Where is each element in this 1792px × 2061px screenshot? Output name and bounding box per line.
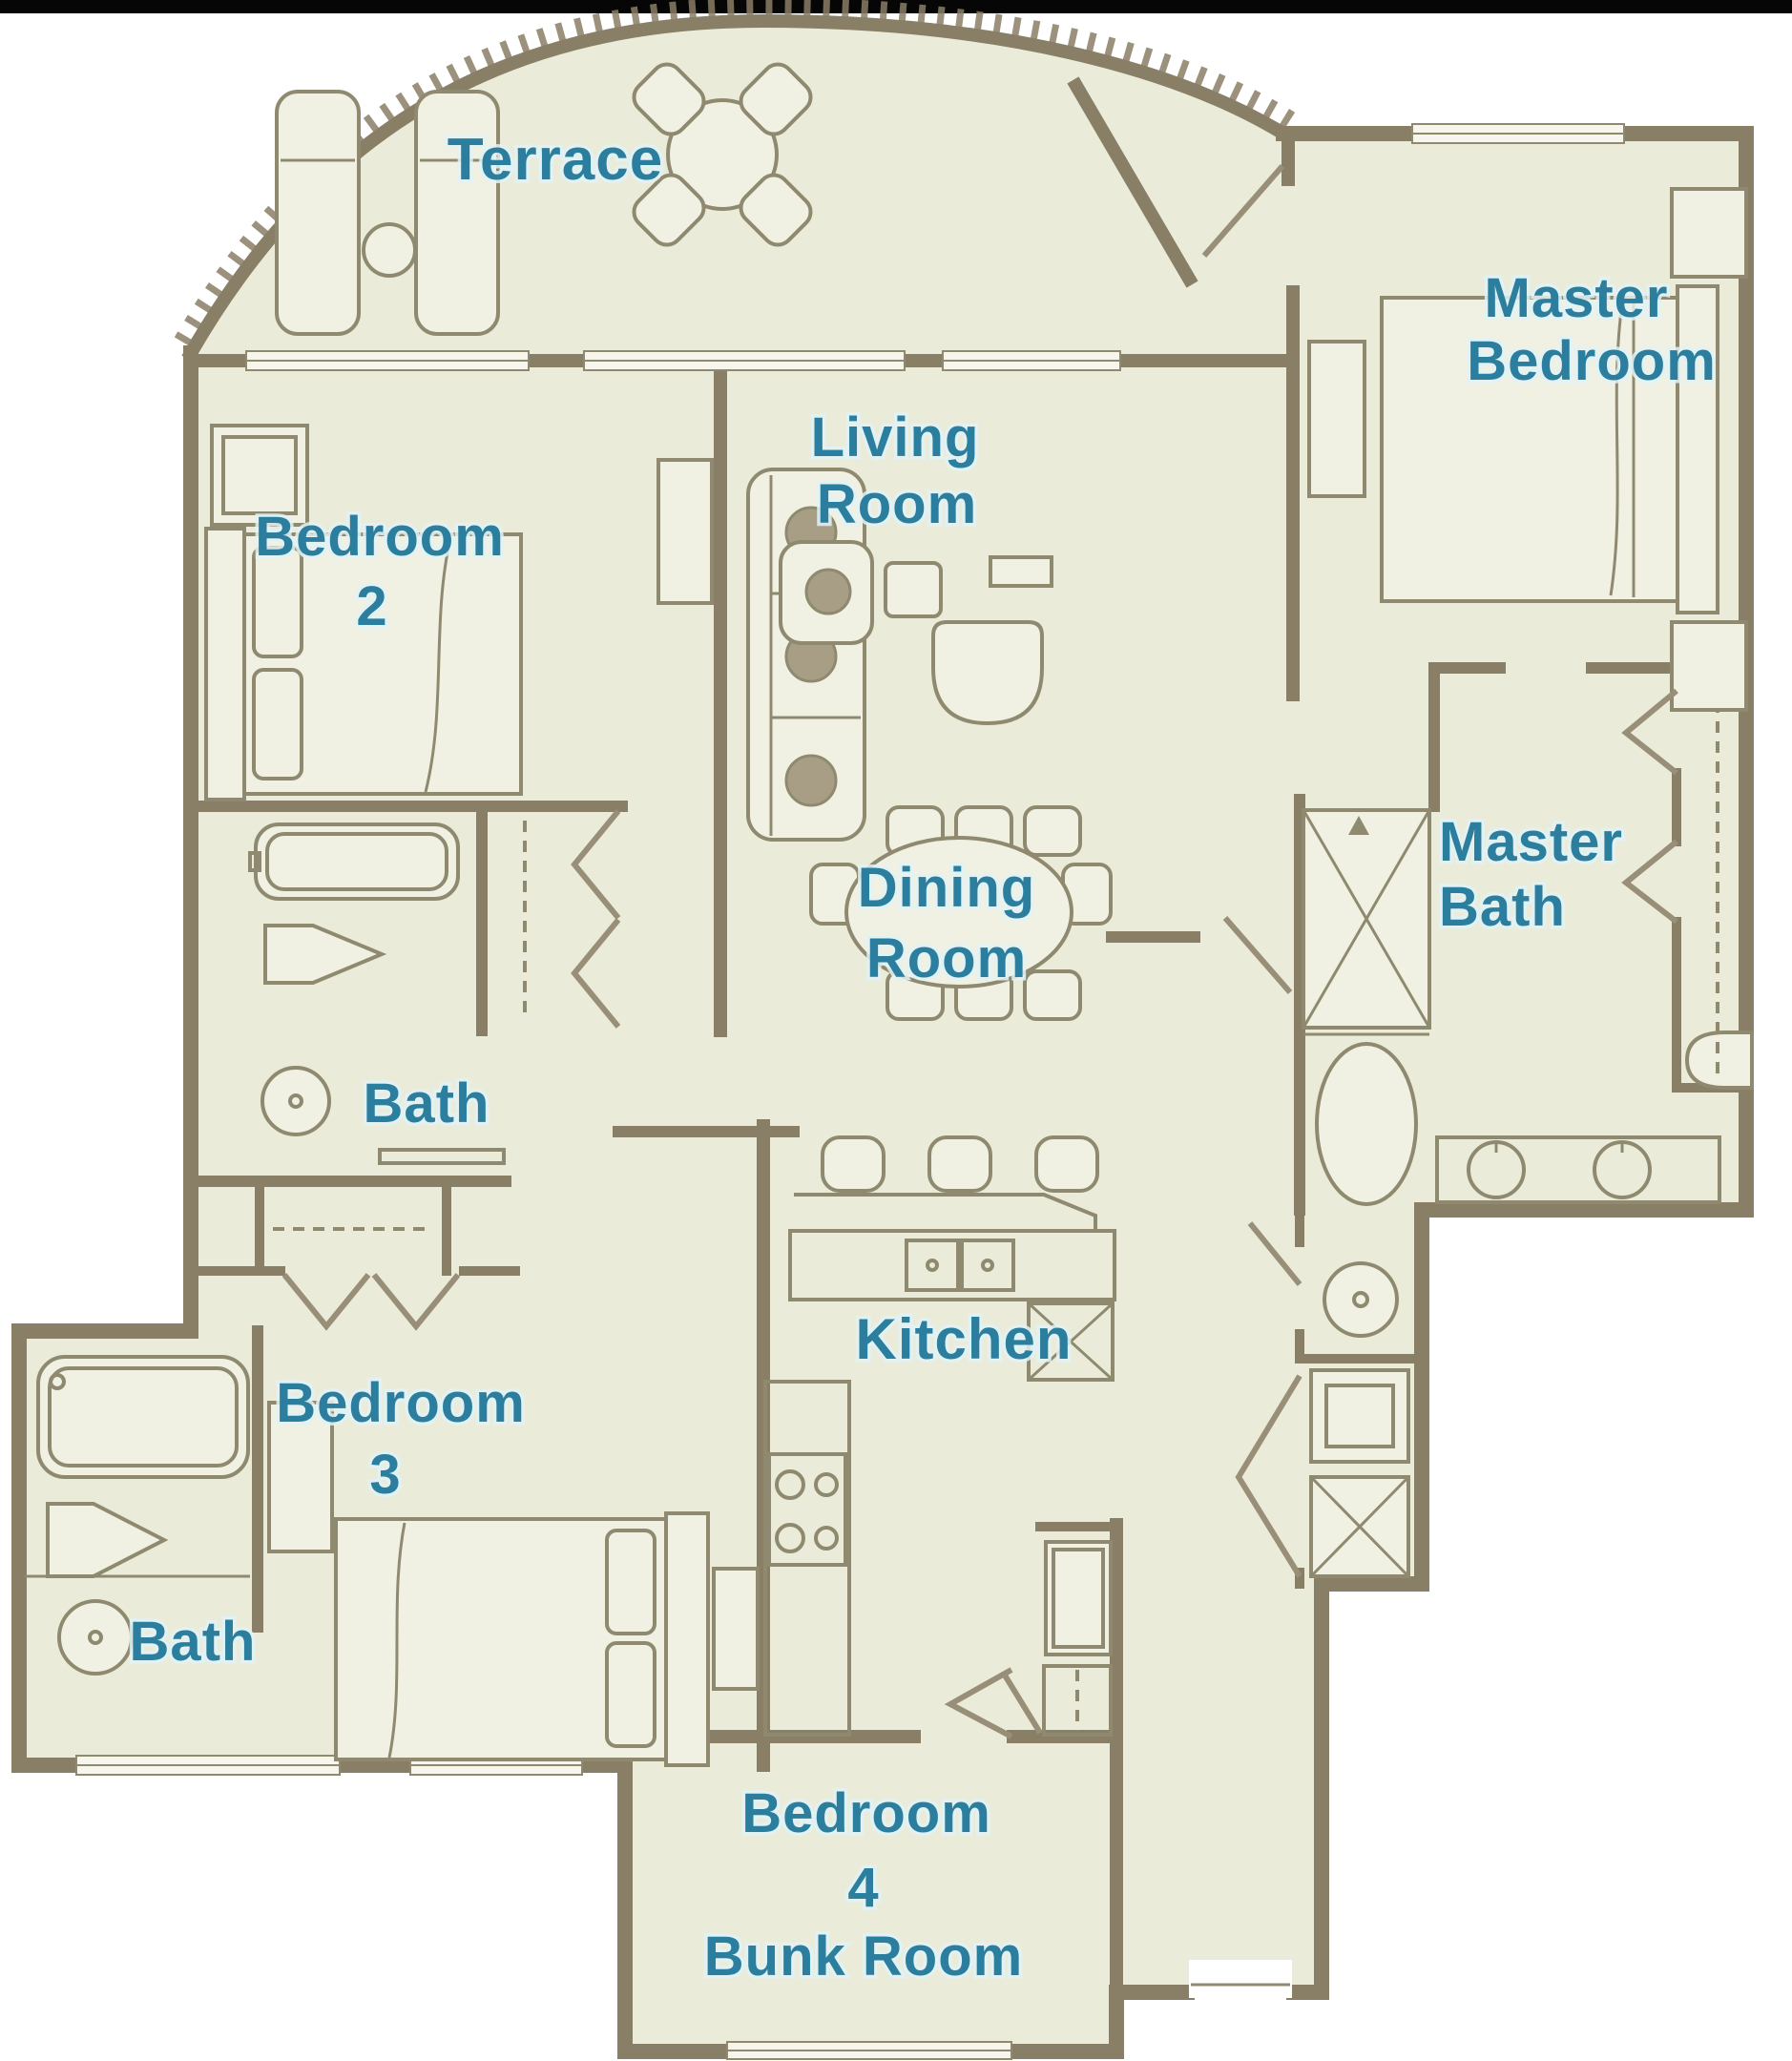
dining-chair-icon <box>1025 971 1080 1019</box>
toilet-icon <box>59 1601 132 1674</box>
pillow-icon <box>607 1530 655 1634</box>
label-living-room: Room <box>817 473 977 535</box>
label-dining-room: Dining <box>858 857 1035 919</box>
accent-chair-icon <box>933 622 1042 723</box>
label-bedroom-3: Bedroom <box>276 1372 526 1434</box>
label-bedroom-4-bunk: Bedroom <box>741 1782 991 1844</box>
dresser-icon <box>658 460 712 603</box>
label-master-bedroom: Master <box>1485 267 1669 329</box>
label-bath-2: Bath <box>130 1611 257 1673</box>
headboard-icon <box>206 529 244 800</box>
bar-stool-icon <box>823 1137 884 1191</box>
label-bedroom-3: 3 <box>369 1444 401 1506</box>
toilet-icon <box>1687 1032 1752 1088</box>
label-master-bath: Bath <box>1439 876 1566 938</box>
label-bedroom-4-bunk: Bunk Room <box>704 1926 1023 1988</box>
side-table-icon <box>990 557 1052 586</box>
toilet-icon <box>262 1068 329 1135</box>
nightstand-icon <box>1672 622 1746 710</box>
top-border-bar <box>0 0 1792 13</box>
label-bath-1: Bath <box>364 1072 490 1135</box>
label-terrace: Terrace <box>448 127 663 193</box>
ottoman-icon <box>886 563 941 616</box>
label-bedroom-2: Bedroom <box>255 506 505 568</box>
bar-stool-icon <box>1036 1137 1097 1191</box>
dresser-icon <box>1309 342 1365 496</box>
utility-fixtures <box>1311 1263 1408 1576</box>
toss-pillow-icon <box>806 570 850 614</box>
headboard-icon <box>666 1513 708 1765</box>
lounge-chair-icon <box>277 92 359 334</box>
toss-pillow-icon <box>786 756 836 805</box>
side-table-icon <box>364 224 415 276</box>
pillow-icon <box>607 1643 655 1746</box>
label-master-bedroom: Bedroom <box>1467 330 1717 392</box>
bathtub-icon <box>38 1357 248 1477</box>
dining-chair-icon <box>1025 807 1080 855</box>
label-bedroom-4-bunk: 4 <box>847 1857 879 1919</box>
label-master-bath: Master <box>1439 811 1623 873</box>
floor-plan: TerraceMasterBedroomBedroom2LivingRoomDi… <box>0 0 1792 2061</box>
bar-stool-icon <box>929 1137 990 1191</box>
pillow-icon <box>254 670 302 779</box>
entry-door-opening <box>1189 1960 1292 1998</box>
label-bedroom-2: 2 <box>356 575 387 637</box>
refrigerator-icon <box>1046 1542 1111 1655</box>
nightstand-icon <box>714 1569 758 1689</box>
soaking-tub-icon <box>1317 1044 1416 1204</box>
label-dining-room: Room <box>866 927 1027 989</box>
label-living-room: Living <box>811 406 980 468</box>
nightstand-icon <box>1672 189 1746 277</box>
floor-plan-page: TerraceMasterBedroomBedroom2LivingRoomDi… <box>0 0 1792 2061</box>
label-kitchen: Kitchen <box>855 1307 1072 1371</box>
toilet-icon <box>1324 1263 1397 1336</box>
